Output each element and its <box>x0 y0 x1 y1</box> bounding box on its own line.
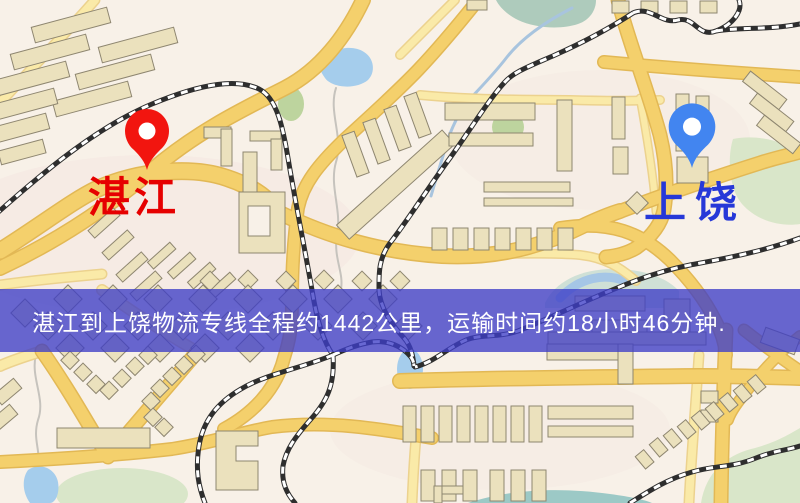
map-image: 湛江 上饶 湛江到上饶物流专线全程约1442公里，运输时间约18小时46分钟. <box>0 0 800 503</box>
destination-city-label: 上饶 <box>644 182 746 224</box>
route-info-banner: 湛江到上饶物流专线全程约1442公里，运输时间约18小时46分钟. <box>0 289 800 352</box>
map-art <box>0 0 800 503</box>
route-info-text: 湛江到上饶物流专线全程约1442公里，运输时间约18小时46分钟. <box>0 304 726 338</box>
origin-city-label: 湛江 <box>88 177 180 219</box>
